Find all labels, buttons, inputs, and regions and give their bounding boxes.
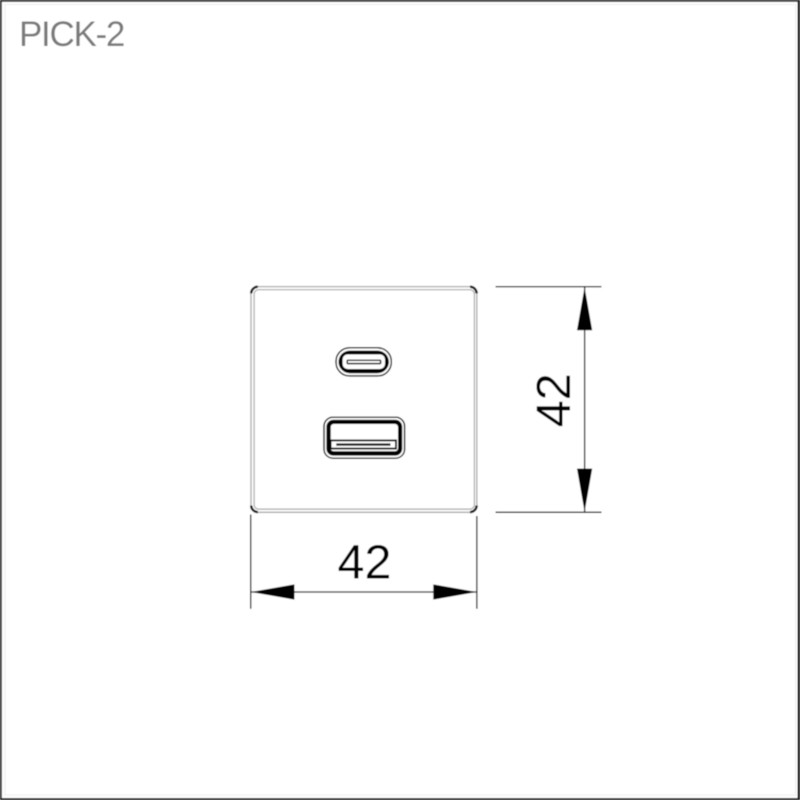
svg-text:42: 42 (338, 536, 392, 590)
svg-text:PICK-2: PICK-2 (19, 15, 124, 54)
svg-text:42: 42 (527, 373, 581, 427)
